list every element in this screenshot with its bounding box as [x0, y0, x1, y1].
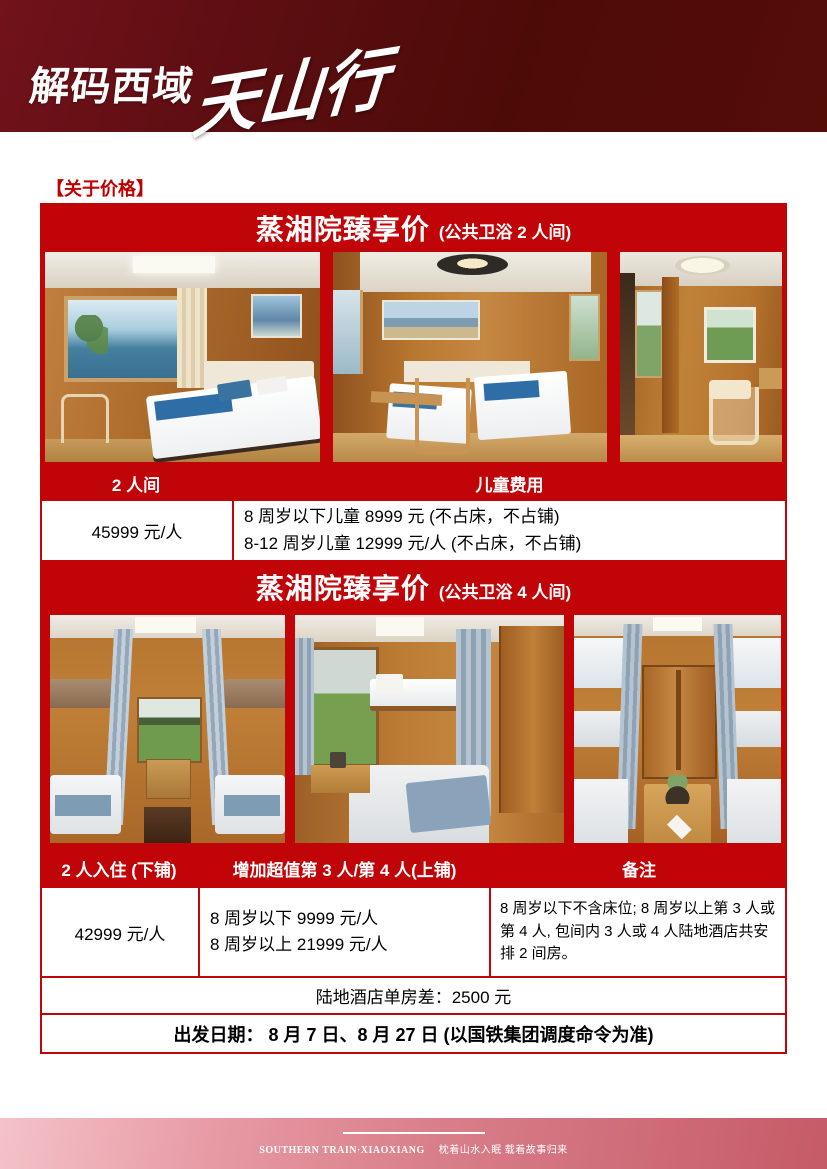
childfee-line1: 8 周岁以下儿童 8999 元 (不占床，不占铺) [244, 504, 775, 530]
block1-photo-row [40, 252, 787, 465]
photo-detail [311, 765, 370, 792]
photo-detail [620, 273, 635, 437]
cabin-photo-bunk-table [295, 615, 564, 843]
photo-detail [137, 697, 202, 763]
footer-slogan: 枕着山水入眠 载着故事归来 [439, 1145, 568, 1156]
photo-detail [704, 307, 755, 363]
photo-detail [333, 290, 363, 374]
extra-line2: 8 周岁以上 21999 元/人 [210, 932, 479, 958]
photo-detail [727, 779, 781, 843]
footer-divider-line [343, 1132, 485, 1134]
photo-detail [61, 394, 108, 443]
photo-detail [653, 617, 703, 631]
cabin-photo-bunks-symmetric [50, 615, 285, 843]
photo-detail [55, 795, 111, 816]
photo-detail [635, 290, 663, 378]
photo-detail [144, 807, 191, 843]
photo-detail [415, 378, 470, 453]
block2-title-banner: 蒸湘院臻享价 (公共卫浴 4 人间) [40, 562, 787, 612]
table1-header-row: 2 人间 儿童费用 [40, 465, 787, 501]
cabin-photo-bunks-wardrobe [574, 615, 781, 843]
masthead-banner: 解码西域天山行 [0, 0, 827, 132]
table2-data-row: 42999 元/人 8 周岁以下 9999 元/人 8 周岁以上 21999 元… [40, 888, 787, 978]
photo-detail [133, 256, 215, 273]
table1-col2-header: 儿童费用 [232, 465, 787, 501]
childfee-line2: 8-12 周岁儿童 12999 元/人 (不占床，不占铺) [244, 531, 775, 557]
block2-title: 蒸湘院臻享价 [256, 567, 430, 607]
table2-col3-header: 备注 [491, 848, 787, 888]
photo-detail [499, 626, 564, 813]
photo-detail [295, 638, 314, 775]
photo-detail [574, 779, 628, 843]
block1-title: 蒸湘院臻享价 [256, 208, 430, 248]
photo-detail [376, 617, 424, 635]
photo-detail [70, 315, 108, 357]
table2-col1-header: 2 人入住 (下铺) [40, 848, 198, 888]
table2-price-cell: 42999 元/人 [42, 888, 198, 976]
table1-col1-header: 2 人间 [40, 465, 232, 501]
departure-date-row: 出发日期： 8 月 7 日、8 月 27 日 (以国铁集团调度命令为准) [40, 1015, 787, 1054]
block1-title-banner: 蒸湘院臻享价 (公共卫浴 2 人间) [40, 203, 787, 252]
photo-detail [406, 775, 491, 833]
photo-detail [330, 752, 346, 768]
cabin-photo-corridor [620, 252, 782, 462]
cabin-photo-twin-window [45, 252, 320, 462]
photo-detail [382, 300, 479, 340]
photo-detail [50, 679, 113, 709]
block2-subtitle: (公共卫浴 4 人间) [439, 578, 571, 603]
footer-band: SOUTHERN TRAIN·XIAOXIANG枕着山水入眠 载着故事归来 [0, 1118, 827, 1169]
photo-detail [662, 277, 678, 432]
photo-detail [665, 775, 690, 805]
block1-subtitle: (公共卫浴 2 人间) [439, 218, 571, 243]
photo-detail [251, 294, 302, 338]
block2-photo-row [40, 612, 787, 848]
table2-col2-header: 增加超值第 3 人/第 4 人(上铺) [198, 848, 491, 888]
brand-logo: 解码西域天山行 [30, 40, 390, 136]
footer-brand: SOUTHERN TRAIN·XIAOXIANG [259, 1145, 424, 1156]
table1-childfee-cell: 8 周岁以下儿童 8999 元 (不占床，不占铺) 8-12 周岁儿童 1299… [232, 501, 785, 560]
logo-text-script: 天山行 [189, 23, 393, 153]
photo-detail [222, 679, 285, 709]
photo-detail [333, 433, 608, 462]
photo-detail [569, 294, 600, 361]
table2-header-row: 2 人入住 (下铺) 增加超值第 3 人/第 4 人(上铺) 备注 [40, 848, 787, 888]
photo-detail [177, 288, 207, 389]
logo-text-bold: 解码西域 [27, 54, 197, 112]
footer-text: SOUTHERN TRAIN·XIAOXIANG枕着山水入眠 载着故事归来 [259, 1141, 567, 1156]
section-label-price: 【关于价格】 [46, 175, 154, 201]
photo-detail [709, 380, 751, 399]
photo-detail [676, 670, 680, 770]
photo-detail [224, 795, 280, 816]
cabin-photo-twin-desk [333, 252, 608, 462]
single-room-diff-row: 陆地酒店单房差：2500 元 [40, 978, 787, 1015]
photo-detail [376, 674, 403, 692]
table2-note-cell: 8 周岁以下不含床位; 8 周岁以上第 3 人或第 4 人, 包间内 3 人或 … [489, 888, 785, 976]
extra-line1: 8 周岁以下 9999 元/人 [210, 906, 479, 932]
table2-extra-cell: 8 周岁以下 9999 元/人 8 周岁以上 21999 元/人 [198, 888, 489, 976]
photo-detail [146, 759, 190, 800]
price-content-column: 蒸湘院臻享价 (公共卫浴 2 人间) [40, 203, 787, 1054]
table1-price-cell: 45999 元/人 [42, 501, 232, 560]
photo-detail [759, 368, 782, 389]
photo-detail [135, 617, 196, 633]
table1-data-row: 45999 元/人 8 周岁以下儿童 8999 元 (不占床，不占铺) 8-12… [40, 501, 787, 562]
